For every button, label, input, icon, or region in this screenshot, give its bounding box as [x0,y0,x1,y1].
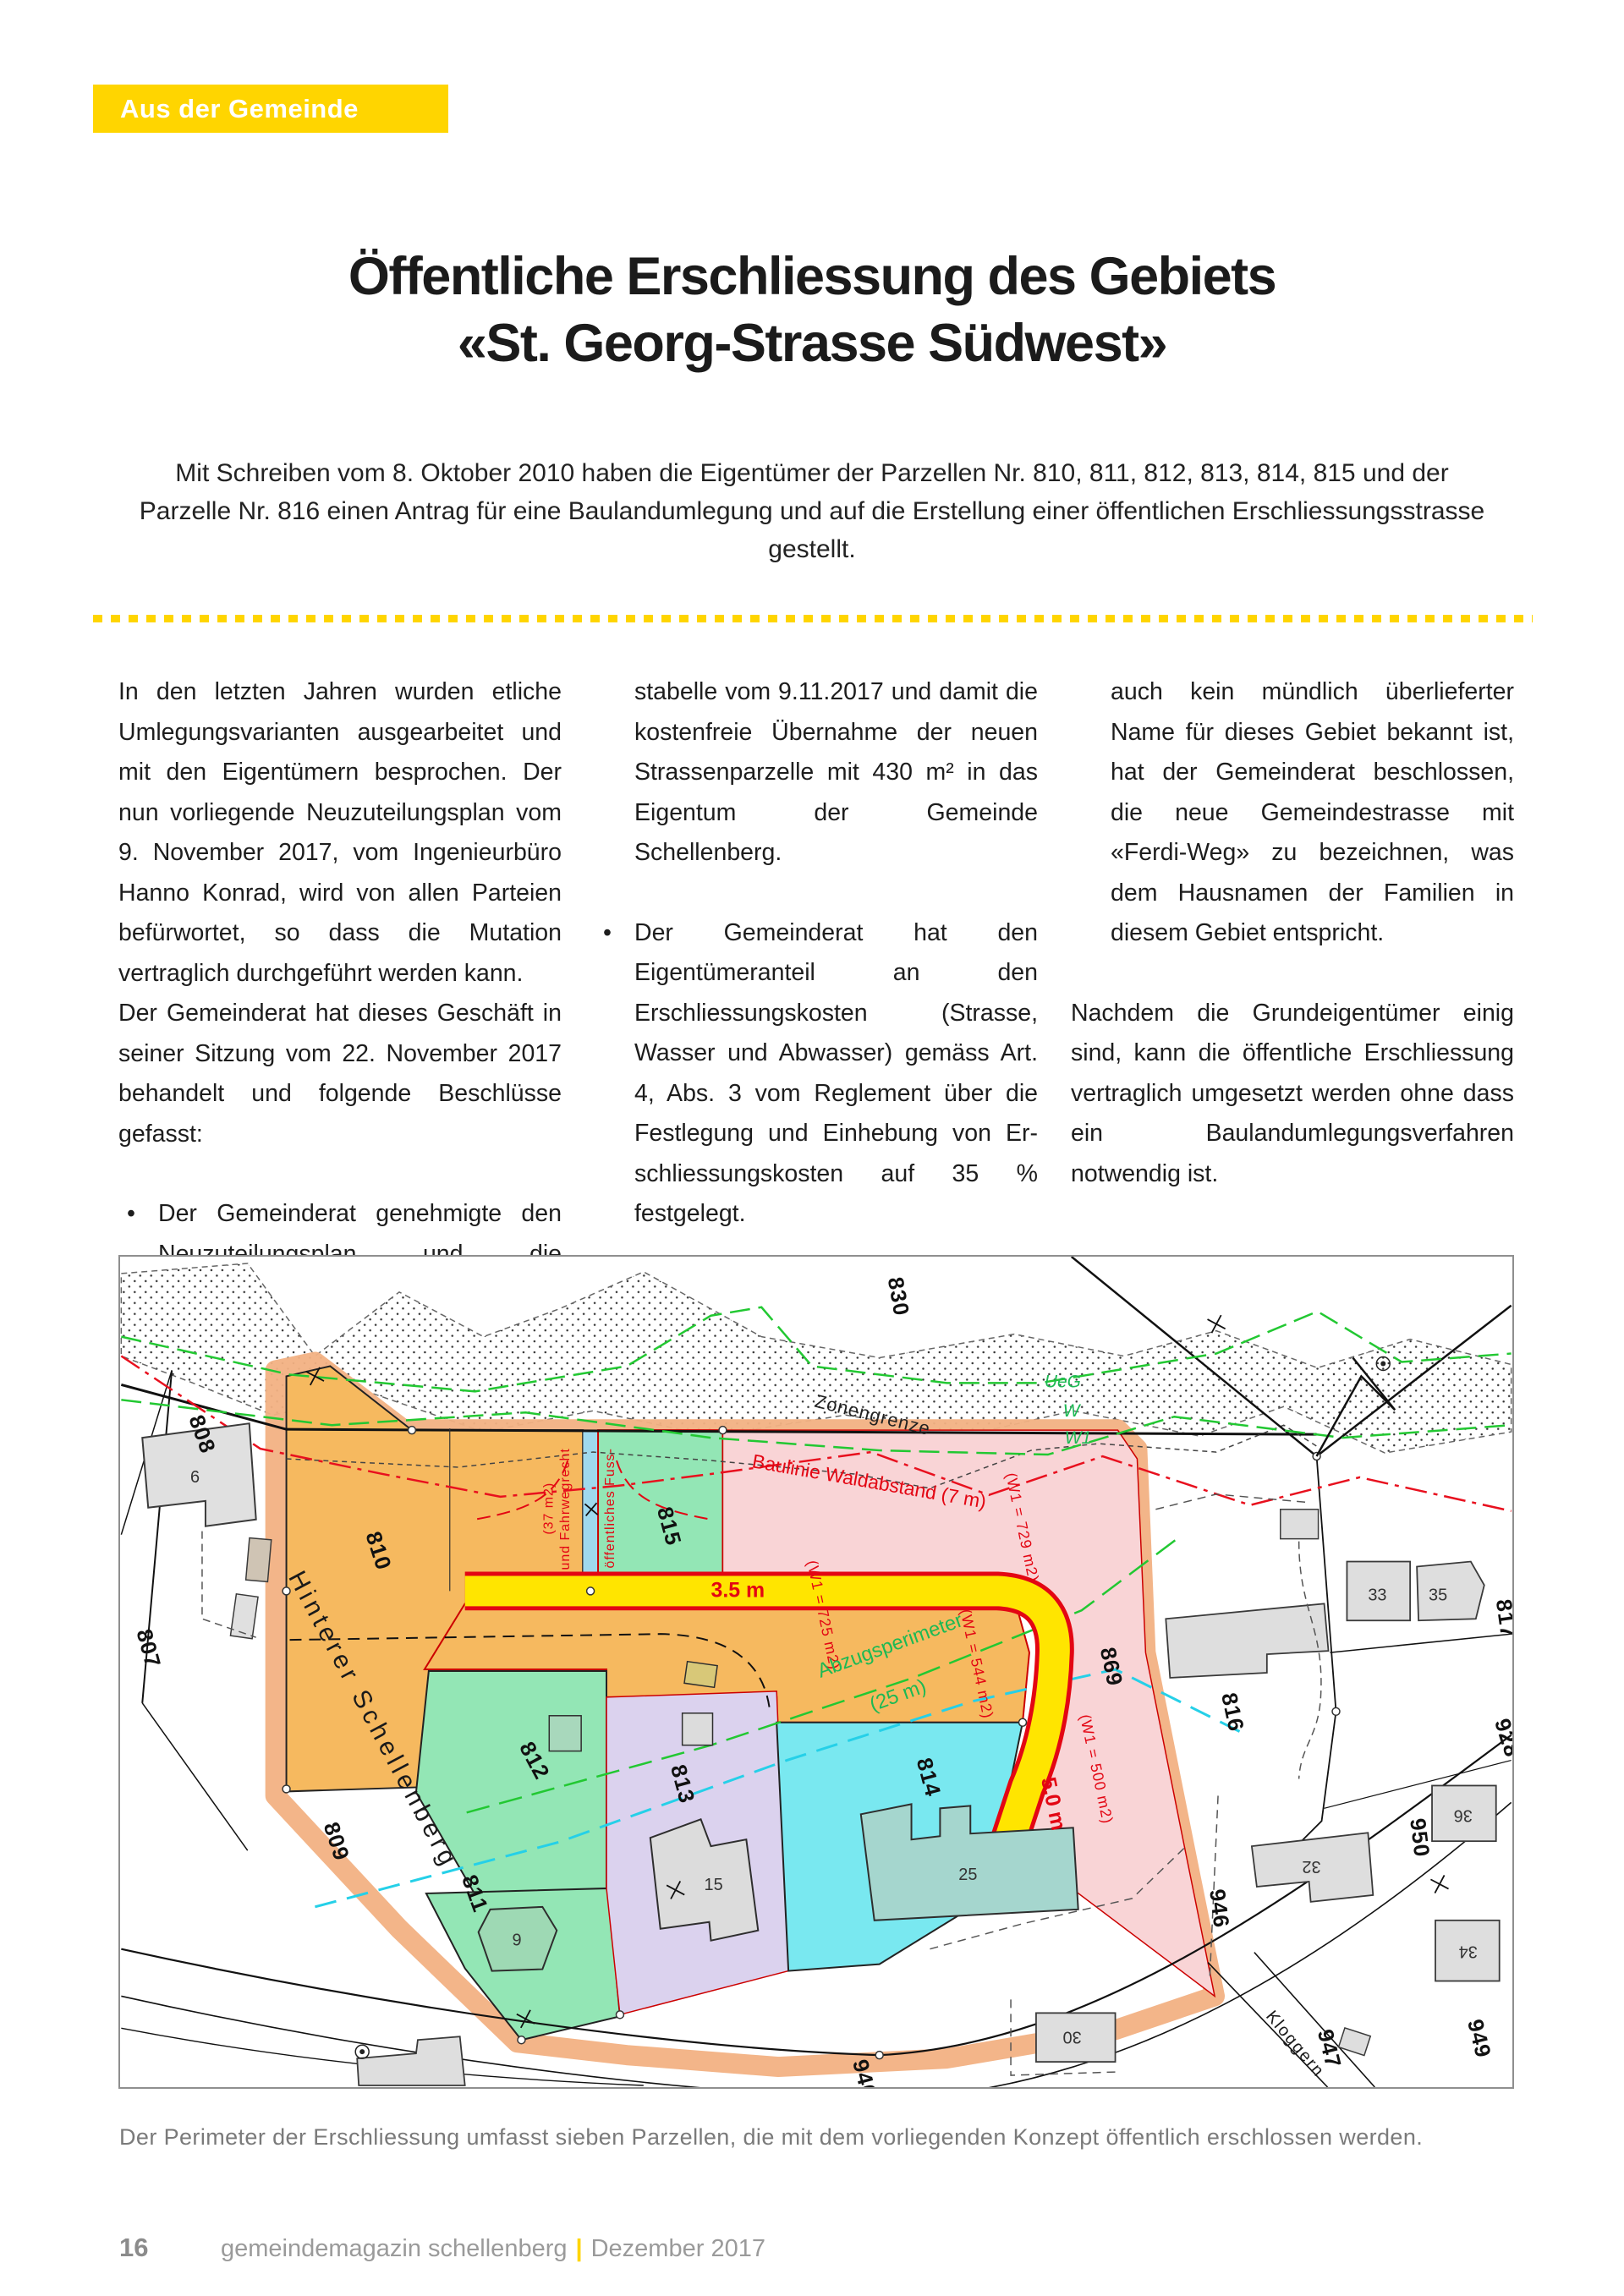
zone-label-w: W [1063,1401,1082,1421]
house-label-32: 32 [1302,1857,1320,1876]
intro-paragraph: Mit Schreiben vom 8. Oktober 2010 haben … [131,454,1493,568]
house-label-9: 9 [512,1932,521,1950]
page-title: Öffentliche Erschliessung des Gebiets «S… [0,244,1624,377]
parcel-label-946: 946 [1204,1888,1232,1929]
cadastral-map-svg: 808 807 809 810 811 812 813 814 815 816 … [120,1257,1512,2087]
house-label-33: 33 [1368,1586,1386,1604]
house-label-36: 36 [1454,1806,1473,1824]
shed-816 [1281,1510,1319,1539]
footer-issue: Dezember 2017 [591,2235,765,2262]
page-title-line2: «St. Georg-Strasse Südwest» [0,310,1624,377]
house-816-shape [1166,1603,1328,1678]
parcel-label-928: 928 [1490,1716,1512,1761]
footer-separator: | [567,2235,590,2262]
parcel-label-816: 816 [1216,1690,1248,1734]
house-bottomleft-shape [357,2036,464,2085]
shed-2 [230,1594,258,1639]
house-label-25: 25 [958,1866,977,1884]
dashed-driveway-816 [1299,1542,1321,1779]
paragraph: In den letzten Jahren wurden etliche Uml… [118,672,562,994]
page-title-line1: Öffentliche Erschliessung des Gebiets [0,244,1624,310]
paragraph-continuation: stabelle vom 9.11.2017 und damit die kos… [595,672,1038,874]
dashed-separator [93,615,1533,622]
parcel-label-807: 807 [131,1627,164,1671]
house-label-6: 6 [190,1468,200,1487]
page-number: 16 [119,2233,221,2263]
dashed-line-816top [1155,1494,1310,1510]
shed-tan [684,1662,717,1688]
zone-label-w1: W1 [1065,1428,1091,1448]
fussweg-label-3: (37 m2) [541,1482,556,1535]
section-badge: Aus der Gemeinde [93,85,448,133]
house-label-15: 15 [705,1876,723,1894]
road-width-label-35: 3.5 m [711,1578,765,1602]
house-35-shape [1417,1562,1484,1621]
shed-812 [549,1716,581,1751]
paragraph: Nachdem die Grundeigentümer einig sind, … [1071,994,1514,1195]
parcel-label-950: 950 [1405,1817,1433,1859]
footer-magazine: gemeindemagazin schellenberg [221,2235,567,2262]
parcel-label-817: 817 [1491,1597,1512,1640]
fussweg-label-2: und Fahrwegrecht [558,1448,573,1570]
boundary-817-split [1330,1634,1512,1652]
parcel-label-949: 949 [1462,2017,1495,2061]
shed-813 [683,1713,713,1745]
page-footer: 16gemeindemagazin schellenberg|Dezember … [119,2233,1515,2263]
fussweg-label-1: öffentliches Fuss- [603,1448,617,1568]
zone-label-ueg: UeG [1045,1372,1081,1391]
house-label-34: 34 [1459,1943,1478,1961]
house-label-35: 35 [1429,1586,1447,1604]
parcel-label-830: 830 [883,1275,913,1318]
paragraph-continuation: auch kein mündlich überlieferter Name fü… [1071,672,1514,954]
boundary-left-3 [142,1703,247,1850]
map-caption: Der Perimeter der Erschliessung umfasst … [119,2124,1515,2151]
bullet-item: Der Gemeinderat hat den Eigentümer­antei… [595,913,1038,1235]
shed-1 [246,1538,272,1582]
house-label-30: 30 [1063,2027,1082,2046]
cadastral-map: 808 807 809 810 811 812 813 814 815 816 … [118,1255,1514,2089]
paragraph: Der Gemeinderat hat dieses Geschäft in s… [118,994,562,1154]
